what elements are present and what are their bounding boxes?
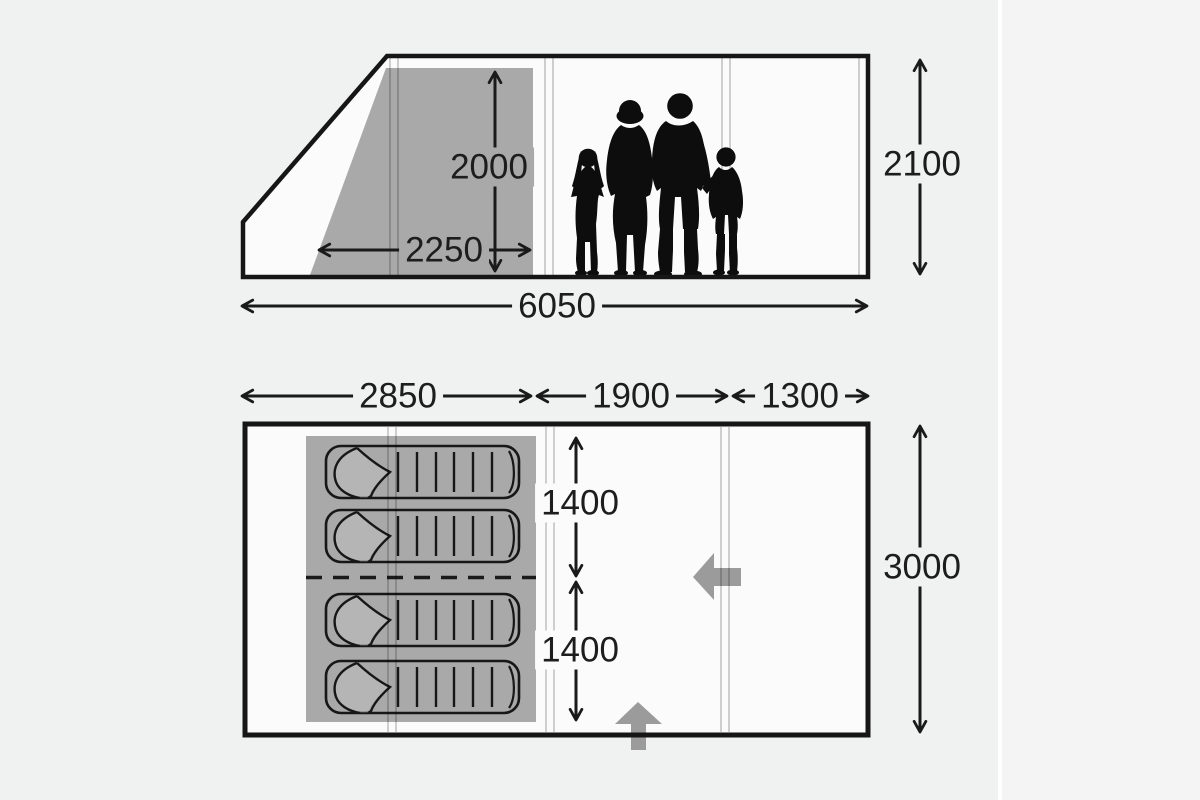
dimension-label-canopy-length: 1300 bbox=[755, 377, 845, 416]
floor-plan bbox=[242, 396, 920, 750]
dimension-label-living-length: 1900 bbox=[586, 377, 676, 416]
dimension-label-total-width: 3000 bbox=[877, 548, 967, 587]
dimension-label-berth-bottom: 1400 bbox=[535, 631, 625, 670]
dimension-label-inner-height: 2000 bbox=[444, 148, 534, 187]
dimension-label-bedroom-length: 2850 bbox=[353, 377, 443, 416]
dimension-label-bedroom-depth: 2250 bbox=[399, 231, 489, 270]
side-view bbox=[242, 56, 920, 306]
dimension-label-berth-top: 1400 bbox=[535, 484, 625, 523]
tent-dimension-diagram: 2000 2250 2100 6050 2850 1900 1300 3000 … bbox=[0, 0, 1200, 800]
dimension-label-max-height: 2100 bbox=[877, 145, 967, 184]
dimension-label-total-length: 6050 bbox=[512, 287, 602, 326]
